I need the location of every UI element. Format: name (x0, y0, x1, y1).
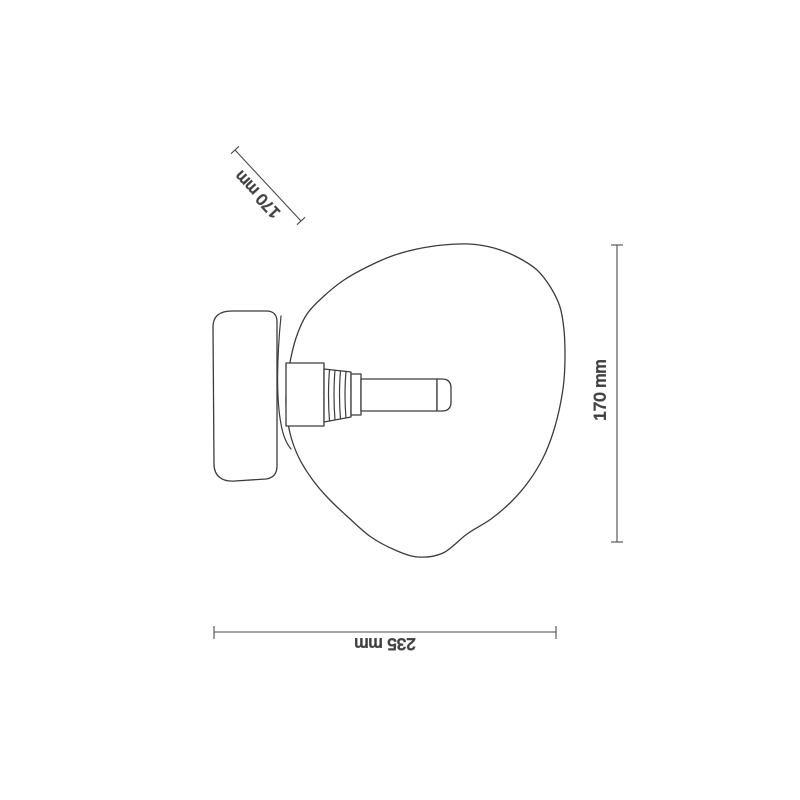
socket-body (286, 363, 324, 426)
technical-drawing-canvas: 170 mm 170 mm 235 mm (0, 0, 800, 800)
bulb-stem (361, 379, 437, 411)
lamp-illustration (213, 244, 565, 557)
wall-mount-canopy (213, 311, 277, 481)
dimension-label-height: 170 mm (591, 359, 610, 420)
wall-lamp-dimension-diagram: 170 mm 170 mm 235 mm (0, 0, 800, 800)
dimension-height: 170 mm (591, 245, 624, 542)
socket-collar (351, 374, 361, 415)
dimension-label-width: 235 mm (354, 635, 415, 654)
dimension-depth: 170 mm (231, 146, 305, 224)
bulb-stem-cap (437, 379, 451, 411)
dimension-width: 235 mm (214, 626, 556, 654)
